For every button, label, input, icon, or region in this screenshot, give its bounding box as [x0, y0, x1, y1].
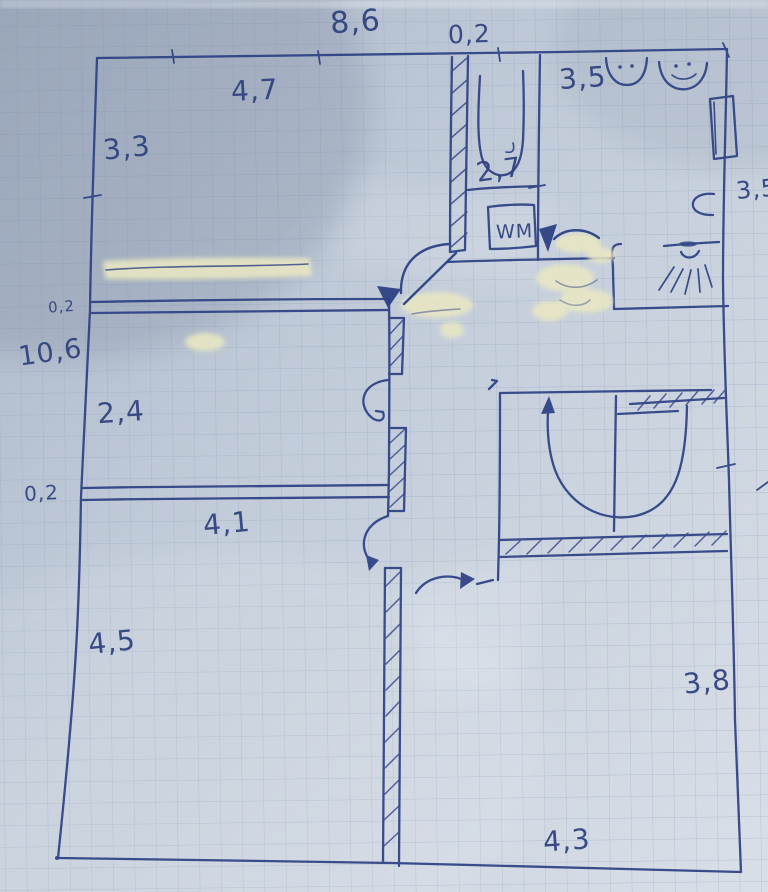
dim-room-bottom-left-depth: 4,5	[87, 623, 138, 661]
dim-room-middle-left-depth: 2,4	[96, 394, 146, 430]
dim-room-bottom-right-depth: 3,8	[682, 663, 733, 701]
dim-top-wall-thickness: 0,2	[447, 19, 491, 49]
dim-bathroom-top-width: 3,5	[558, 60, 608, 96]
dim-overall-width: 8,6	[329, 3, 382, 41]
floor-plan-photo: 8,6 0,2 4,7 3,3 3,5 2,7 3,5 0,2 10,6 2,4…	[0, 0, 768, 892]
dim-bathroom-right-depth: 3,5	[735, 174, 768, 205]
washing-machine-label: WM	[496, 220, 534, 243]
dim-room-top-left-width: 4,7	[230, 73, 279, 108]
floor-plan-drawing: 8,6 0,2 4,7 3,3 3,5 2,7 3,5 0,2 10,6 2,4…	[0, 0, 768, 892]
dim-bath-corridor-width: 2,7	[474, 152, 524, 189]
dim-left-wall-thickness-upper: 0,2	[47, 297, 75, 317]
dim-room-middle-left-width: 4,1	[202, 505, 252, 542]
dim-room-bottom-right-width: 4,3	[542, 822, 592, 858]
dim-room-top-left-depth: 3,3	[101, 129, 152, 167]
dim-left-wall-thickness-lower: 0,2	[23, 480, 59, 506]
